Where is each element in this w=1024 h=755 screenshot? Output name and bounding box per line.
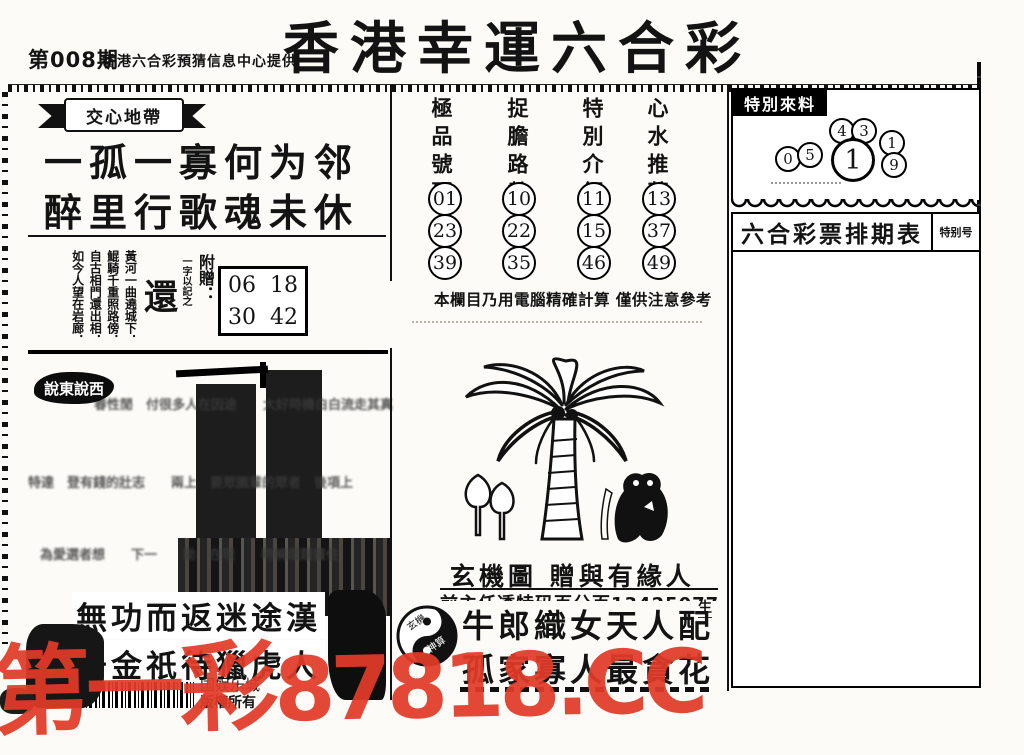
gossip-section: 春性閒 付很多人在因途 大好時機白白流走其真 特達 登有錢的壯志 兩上 要眾園輩…: [28, 360, 390, 622]
schedule-table-header: 六合彩票排期表 特别号: [733, 214, 979, 252]
page-title: 香港幸運六合彩: [283, 4, 752, 85]
schedule-table-box: 六合彩票排期表 特别号: [731, 212, 981, 688]
pick-number: 11: [577, 182, 611, 216]
bonus-numbers-box: 06 18 30 42: [218, 266, 308, 336]
ribbon-label: 交心地帶: [64, 98, 184, 132]
hint-character: 還: [144, 270, 178, 319]
computer-note: 本欄目乃用電腦精確計算 僅供注意參考: [434, 288, 712, 310]
schedule-corner-label: 特别号: [931, 214, 979, 250]
pick-number: 01: [428, 182, 462, 216]
thick-divider: [28, 350, 388, 354]
pick-number: 23: [428, 214, 462, 248]
blurred-text-line: 為愛選者想 下一 動 在現 時曉環題畫住: [40, 544, 339, 563]
gossip-label: 說東說西: [34, 372, 114, 404]
pick-number: 37: [642, 214, 676, 248]
dotted-divider: [412, 321, 702, 323]
pick-number: 22: [502, 214, 536, 248]
bonus-number: 06: [228, 273, 256, 298]
pick-number: 13: [642, 182, 676, 216]
hint-character-label: 一字以記之: [178, 256, 193, 306]
special-tips-box: 特別來料 0 5 4 3 1 1 9: [731, 88, 981, 202]
bonus-number: 30: [228, 305, 256, 330]
bonus-number: 42: [270, 305, 298, 330]
pick-number: 35: [502, 246, 536, 280]
pick-number: 39: [428, 246, 462, 280]
palm-tree-illustration: [448, 357, 678, 557]
decorative-left-border: [2, 92, 8, 644]
vertical-verse: 黃河一曲遶城下． 鯤騎千重照路傍． 自古相門還出相． 如今人望在岩廊．: [66, 250, 136, 352]
watermark-chinese: 第一彩: [0, 630, 275, 751]
red-watermark: 第一彩87818.CC: [0, 599, 704, 755]
scalloped-divider: [731, 199, 977, 210]
verse-col-2: 鯤騎千重照路傍．: [106, 250, 119, 346]
dotted-divider: [771, 182, 841, 184]
blurred-text-line: 特達 登有錢的壯志 兩上 要眾園輩的眾者 後項上: [28, 472, 353, 491]
verse-col-4: 如今人望在岩廊．: [71, 250, 84, 346]
provider-line: 香港六合彩預猜信息中心提供: [102, 51, 297, 71]
bonus-label: 附贈：: [193, 254, 217, 302]
pick-number: 10: [502, 182, 536, 216]
poem-line-1: 一孤一寡何为邻: [44, 132, 359, 187]
verse-col-3: 自古相門還出相．: [89, 250, 102, 346]
verse-col-1: 黃河一曲遶城下．: [124, 250, 137, 346]
poem-line-2: 醉里行歌魂未休: [44, 182, 359, 237]
divider: [28, 235, 386, 237]
heart-zone-ribbon: 交心地帶: [38, 98, 206, 132]
special-digit-main: 1: [831, 138, 875, 182]
blurred-text-line: 春性閒 付很多人在因途 大好時機白白流走其真: [94, 394, 393, 413]
pick-number: 49: [642, 246, 676, 280]
crane-on-tower: [176, 366, 268, 378]
special-tips-title: 特別來料: [733, 90, 827, 116]
bonus-number: 18: [270, 273, 298, 298]
pick-number: 15: [577, 214, 611, 248]
crane-mast: [260, 362, 266, 388]
pick-number: 46: [577, 246, 611, 280]
watermark-site-code: 87818.CC: [273, 630, 704, 742]
special-digit: 5: [797, 142, 823, 168]
special-digit: 9: [881, 152, 907, 178]
schedule-table-title: 六合彩票排期表: [733, 214, 931, 250]
